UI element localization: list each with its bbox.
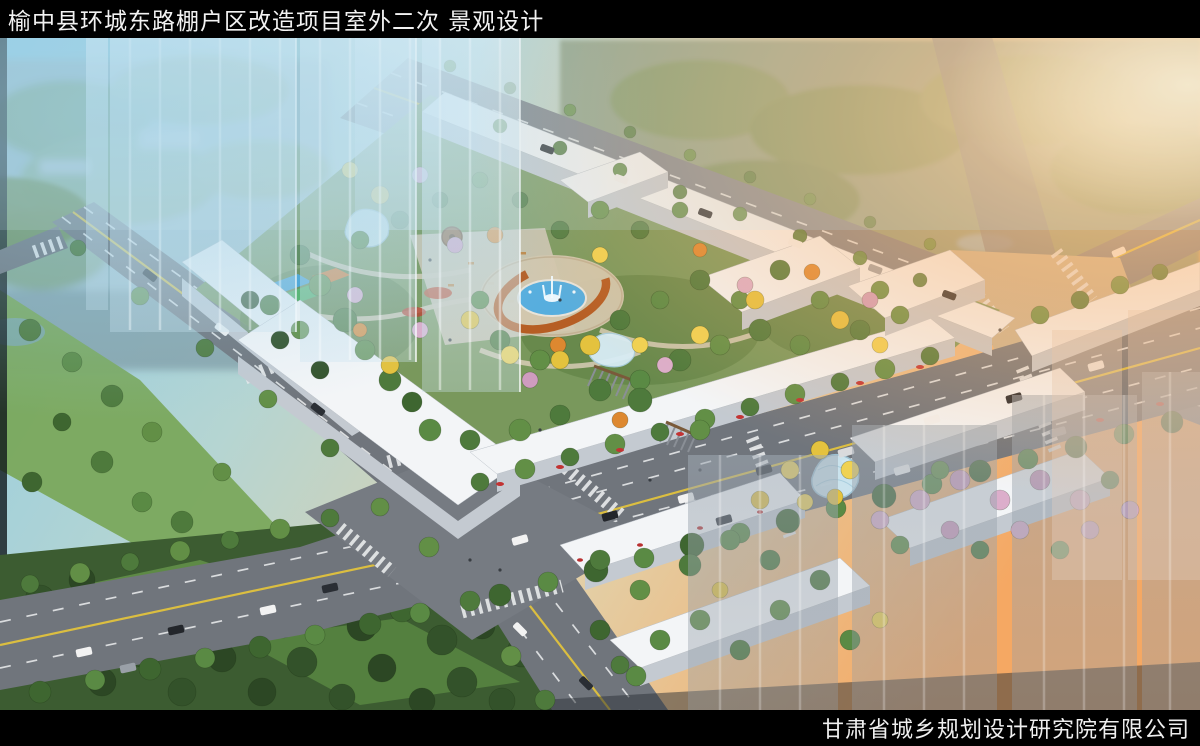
project-title: 榆中县环城东路棚户区改造项目室外二次 景观设计 bbox=[0, 2, 544, 36]
bottom-credit-bar: 甘肃省城乡规划设计研究院有限公司 bbox=[0, 710, 1200, 746]
company-name: 甘肃省城乡规划设计研究院有限公司 bbox=[822, 712, 1200, 744]
presentation-board: 榆中县环城东路棚户区改造项目室外二次 景观设计 甘肃省城乡规划设计研究院有限公司 bbox=[0, 0, 1200, 746]
render-scene bbox=[0, 0, 1200, 746]
top-title-bar: 榆中县环城东路棚户区改造项目室外二次 景观设计 bbox=[0, 0, 1200, 38]
atmosphere-overlays bbox=[0, 30, 1200, 716]
